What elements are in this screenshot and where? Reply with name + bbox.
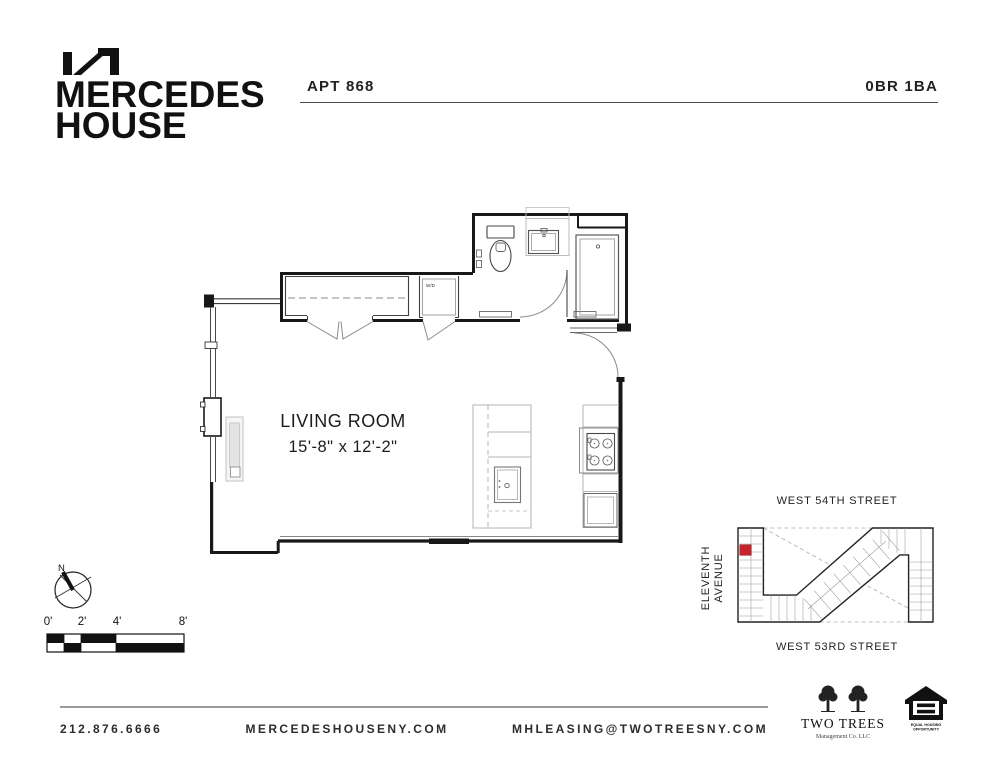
- wall-return-cap: [617, 324, 631, 332]
- two-trees-name: TWO TREES: [801, 716, 885, 731]
- equal-housing-logo: EQUAL HOUSING OPPORTUNITY: [903, 684, 949, 732]
- logo-line2: HOUSE: [55, 110, 265, 141]
- window-mullion: [205, 342, 217, 349]
- street-label-north: WEST 54TH STREET: [737, 495, 937, 507]
- header-divider: [300, 102, 938, 103]
- tree-icons: [819, 686, 868, 713]
- scalebar-labels: 0' 2' 4' 8': [46, 616, 196, 630]
- entry-threshold: [570, 328, 617, 333]
- avenue-line2: AVENUE: [713, 523, 726, 633]
- scale-label-0: 0': [44, 616, 53, 628]
- toilet: [487, 226, 514, 272]
- bottom-wall-segment: [429, 539, 469, 545]
- footer-divider: [60, 706, 768, 708]
- email-link[interactable]: MHLEASING@TWOTREESNY.COM: [512, 722, 768, 736]
- unit-type-badge: 0BR 1BA: [790, 78, 938, 95]
- equal-housing-house-icon: [905, 686, 947, 720]
- building-outline: [738, 528, 933, 622]
- room-label: LIVING ROOM: [280, 411, 406, 431]
- stove: [580, 428, 619, 473]
- apartment-number: APT 868: [307, 78, 375, 95]
- floorplan-sheet: MERCEDES HOUSE APT 868 0BR 1BA: [0, 0, 994, 768]
- closet-bifold-doors: [307, 322, 373, 340]
- compass: N: [48, 558, 98, 614]
- scale-label-2: 2': [78, 616, 87, 628]
- bathroom-door: [520, 270, 567, 317]
- entry-door: [574, 333, 618, 377]
- laundry-closet: [419, 276, 459, 318]
- two-trees-logo: TWO TREES Management Co. LLC: [800, 680, 892, 744]
- two-trees-subtitle: Management Co. LLC: [816, 734, 870, 740]
- room-dimensions: 15'-8" x 12'-2": [289, 438, 398, 456]
- floorplan-drawing: W/D: [190, 195, 650, 565]
- window-wall: [211, 307, 216, 482]
- unit-location-marker: [740, 545, 752, 556]
- equal-housing-line1: EQUAL HOUSING: [911, 723, 941, 727]
- walls: [210, 213, 627, 553]
- building-site-map: [735, 520, 937, 630]
- ptac-unit: [226, 417, 243, 481]
- logo-wordmark: MERCEDES HOUSE: [55, 79, 265, 142]
- avenue-label: ELEVENTH AVENUE: [700, 523, 730, 633]
- equal-housing-line2: OPPORTUNITY: [913, 727, 940, 731]
- door-jamb-cap: [617, 377, 625, 382]
- washer-dryer-label: W/D: [426, 283, 436, 288]
- laundry-closet-door: [423, 322, 455, 341]
- scale-label-4: 4': [113, 616, 122, 628]
- kitchen-island: [473, 405, 531, 528]
- phone-link[interactable]: 212.876.6666: [60, 722, 162, 736]
- street-label-south: WEST 53RD STREET: [737, 641, 937, 653]
- corner-wall-cap: [204, 295, 214, 308]
- website-link[interactable]: MERCEDESHOUSENY.COM: [246, 722, 449, 736]
- scalebar: [46, 633, 185, 653]
- avenue-line1: ELEVENTH: [700, 523, 713, 633]
- mercedes-house-roofline-icon: [62, 45, 120, 75]
- corridor-wall: [214, 299, 280, 304]
- dishwasher: [584, 494, 617, 528]
- closet: [285, 276, 409, 321]
- shower-stall: [576, 235, 619, 319]
- scale-label-8: 8': [179, 616, 188, 628]
- wall-pier: [201, 398, 222, 436]
- compass-needle-icon: [63, 572, 73, 590]
